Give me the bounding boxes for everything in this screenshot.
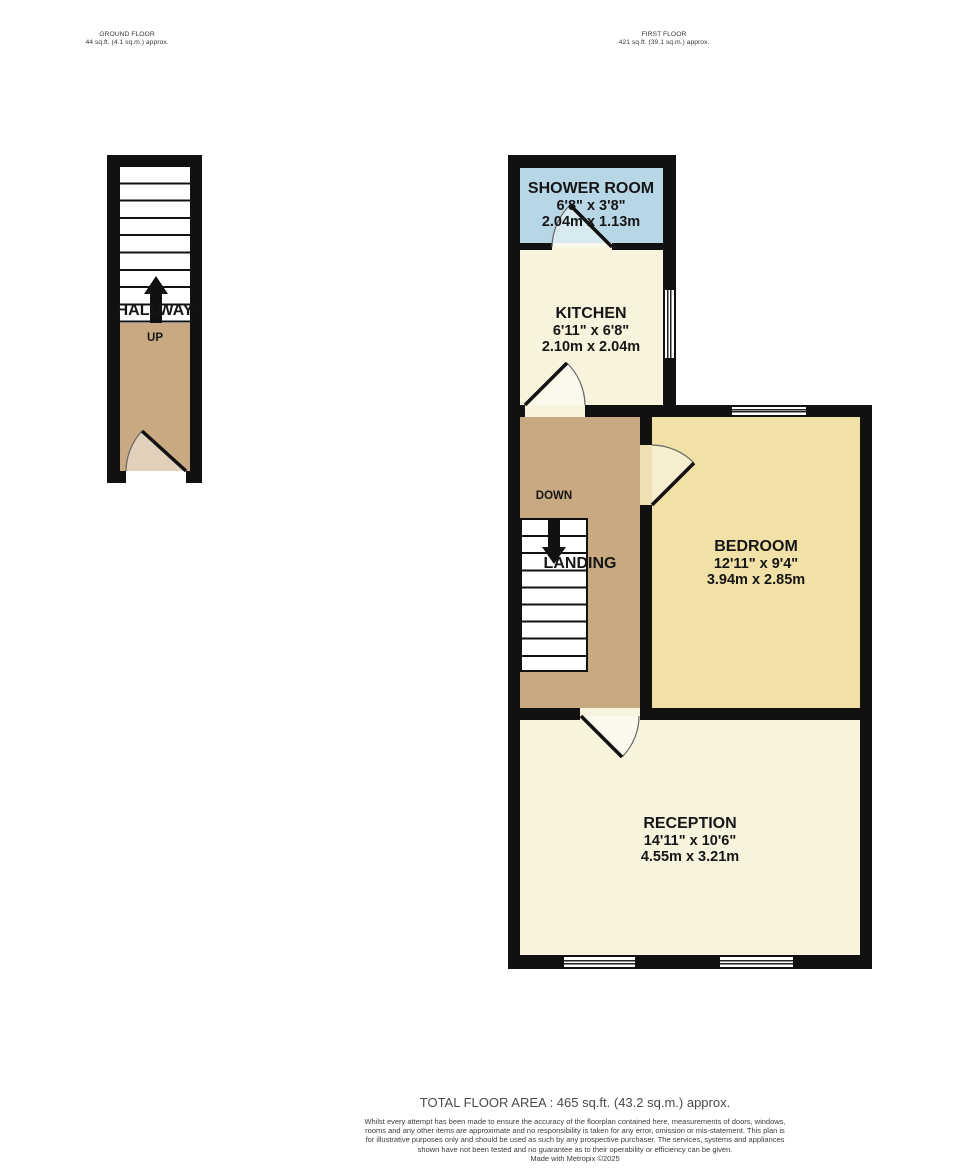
reception-name: RECEPTION	[641, 816, 739, 833]
landing-down-label: DOWN	[536, 490, 572, 502]
reception-metric: 4.55m x 3.21m	[641, 849, 739, 866]
landing-stairs	[520, 518, 588, 672]
bedroom-window	[730, 405, 808, 417]
shower-room-name: SHOWER ROOM	[528, 181, 654, 198]
reception-label: RECEPTION 14'11" x 10'6" 4.55m x 3.21m	[641, 816, 739, 866]
kitchen-door-gap	[525, 405, 585, 417]
hallway-label: HALLWAY	[117, 303, 194, 320]
first-floor-title: FIRST FLOOR	[619, 31, 710, 39]
bedroom-door-gap	[640, 445, 652, 505]
shower-room-metric: 2.04m x 1.13m	[528, 214, 654, 231]
footer: TOTAL FLOOR AREA : 465 sq.ft. (43.2 sq.m…	[325, 1095, 825, 1163]
credit-text: Made with Metropix ©2025	[325, 1154, 825, 1163]
kitchen-imperial: 6'11" x 6'8"	[542, 323, 640, 340]
reception-window-right	[718, 955, 795, 969]
landing-name: LANDING	[544, 556, 617, 573]
hallway-name: HALLWAY	[117, 303, 194, 320]
bedroom-label: BEDROOM 12'11" x 9'4" 3.94m x 2.85m	[707, 539, 805, 589]
hallway-room	[120, 323, 190, 471]
reception-door-gap	[580, 708, 640, 720]
bedroom-metric: 3.94m x 2.85m	[707, 572, 805, 589]
landing-label: LANDING	[544, 556, 617, 573]
kitchen-label: KITCHEN 6'11" x 6'8" 2.10m x 2.04m	[542, 306, 640, 356]
shower-room-label: SHOWER ROOM 6'8" x 3'8" 2.04m x 1.13m	[528, 181, 654, 231]
bedroom-name: BEDROOM	[707, 539, 805, 556]
kitchen-metric: 2.10m x 2.04m	[542, 339, 640, 356]
kitchen-name: KITCHEN	[542, 306, 640, 323]
reception-window-left	[562, 955, 637, 969]
hallway-stairs	[120, 167, 190, 323]
ground-floor-title: GROUND FLOOR	[85, 31, 168, 39]
shower-room-imperial: 6'8" x 3'8"	[528, 198, 654, 215]
reception-imperial: 14'11" x 10'6"	[641, 833, 739, 850]
bedroom-imperial: 12'11" x 9'4"	[707, 556, 805, 573]
total-floor-area: TOTAL FLOOR AREA : 465 sq.ft. (43.2 sq.m…	[325, 1095, 825, 1110]
hallway-up-label: UP	[147, 332, 163, 344]
kitchen-window	[663, 288, 676, 360]
disclaimer-text: Whilst every attempt has been made to en…	[363, 1117, 787, 1154]
ground-floor-label: GROUND FLOOR 44 sq.ft. (4.1 sq.m.) appro…	[85, 31, 168, 47]
shower-door-gap	[552, 243, 612, 250]
floorplan: GROUND FLOOR 44 sq.ft. (4.1 sq.m.) appro…	[0, 0, 980, 1169]
first-floor-area: 421 sq.ft. (39.1 sq.m.) approx.	[619, 39, 710, 47]
hallway-entrance-door-gap	[126, 471, 186, 485]
first-floor-label: FIRST FLOOR 421 sq.ft. (39.1 sq.m.) appr…	[619, 31, 710, 47]
ground-floor-area: 44 sq.ft. (4.1 sq.m.) approx.	[85, 39, 168, 47]
